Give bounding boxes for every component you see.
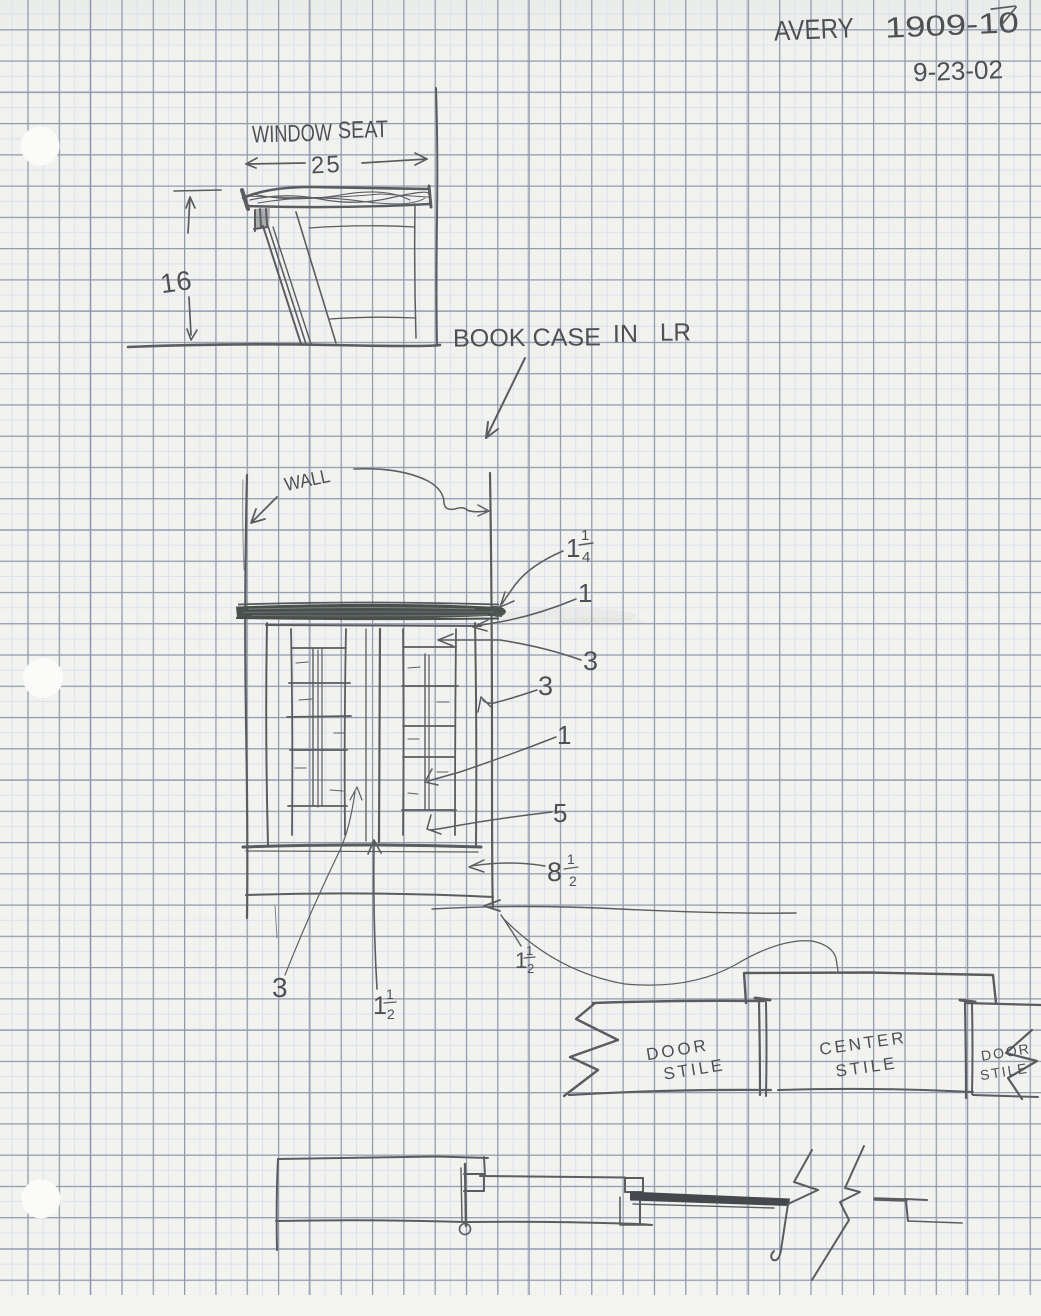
svg-text:1: 1	[578, 578, 592, 608]
svg-text:25: 25	[310, 151, 342, 180]
svg-text:1: 1	[526, 943, 533, 958]
svg-text:1: 1	[557, 720, 571, 750]
svg-text:3: 3	[583, 646, 598, 676]
svg-text:16: 16	[158, 265, 194, 299]
svg-text:WINDOW: WINDOW	[252, 119, 333, 148]
svg-text:9-23-02: 9-23-02	[913, 54, 1004, 87]
svg-text:2: 2	[527, 961, 534, 976]
svg-text:AVERY: AVERY	[773, 12, 855, 46]
svg-text:3: 3	[272, 972, 288, 1003]
svg-text:1909-10: 1909-10	[884, 7, 1019, 45]
svg-text:1: 1	[581, 527, 589, 544]
svg-text:2: 2	[569, 873, 577, 889]
svg-text:5: 5	[553, 798, 567, 828]
svg-text:1: 1	[386, 986, 394, 1002]
svg-text:2: 2	[387, 1006, 395, 1022]
svg-text:SEAT: SEAT	[338, 116, 389, 144]
svg-text:IN: IN	[613, 320, 638, 348]
svg-text:8: 8	[547, 857, 562, 887]
svg-text:BOOK CASE: BOOK CASE	[453, 323, 601, 352]
svg-text:3: 3	[538, 671, 553, 701]
svg-text:1: 1	[567, 851, 575, 867]
svg-text:1: 1	[566, 533, 580, 563]
svg-text:LR: LR	[660, 319, 691, 347]
svg-text:1: 1	[373, 992, 387, 1020]
svg-text:4: 4	[582, 549, 590, 566]
